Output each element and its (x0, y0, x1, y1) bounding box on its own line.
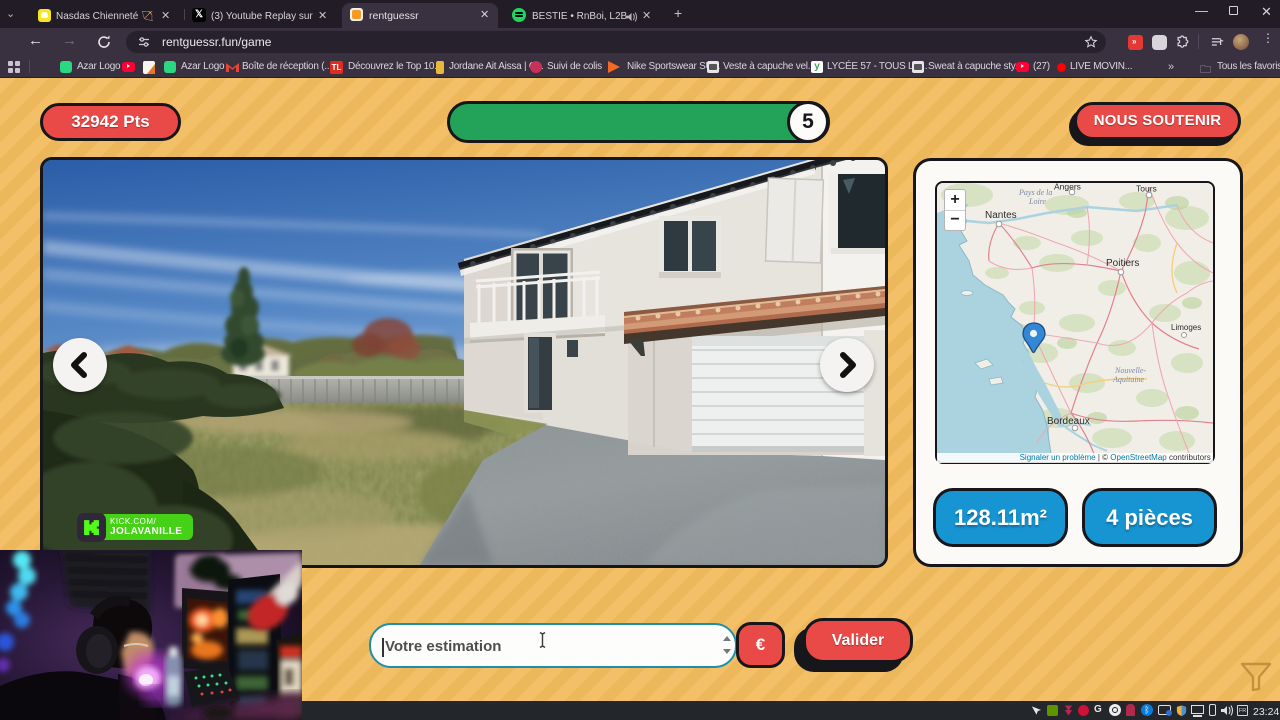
svg-text:Nouvelle-: Nouvelle- (1114, 366, 1146, 375)
svg-text:Poitiers: Poitiers (1106, 258, 1139, 269)
svg-text:Limoges: Limoges (1171, 323, 1201, 332)
svg-text:Loire: Loire (1028, 197, 1046, 206)
svg-text:Angers: Angers (1054, 183, 1081, 192)
svg-text:Bordeaux: Bordeaux (1047, 416, 1090, 427)
svg-text:Aquitaine: Aquitaine (1112, 375, 1145, 384)
svg-text:Pays de la: Pays de la (1018, 188, 1052, 197)
svg-text:Nantes: Nantes (985, 210, 1017, 221)
svg-text:Tours: Tours (1136, 184, 1157, 194)
